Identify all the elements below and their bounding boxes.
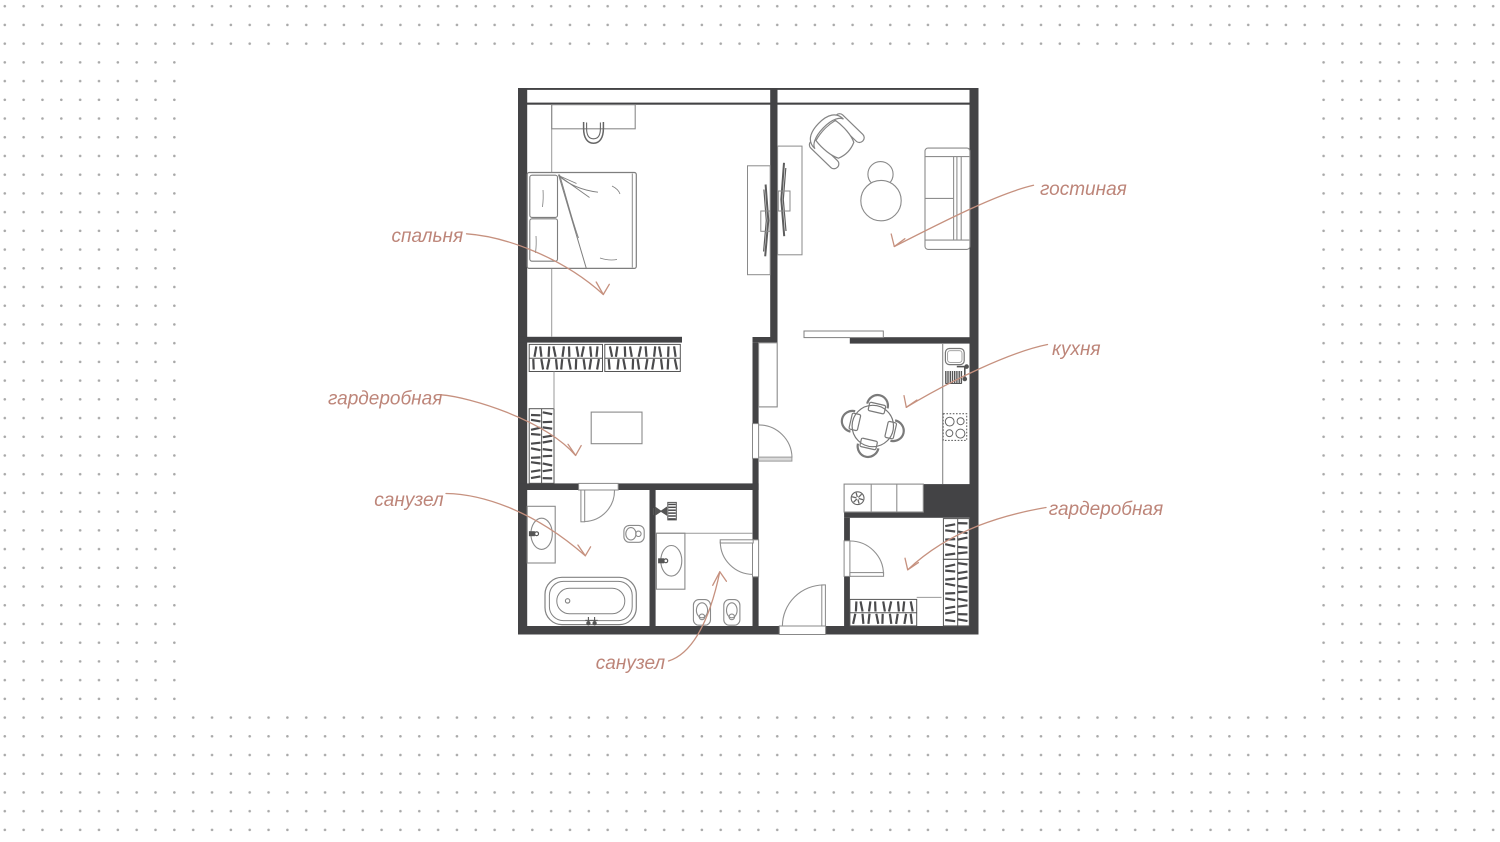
svg-text:гардеробная: гардеробная	[1049, 499, 1163, 520]
svg-text:гостиная: гостиная	[1040, 179, 1127, 200]
svg-text:спальня: спальня	[392, 226, 464, 247]
svg-text:гардеробная: гардеробная	[328, 389, 442, 410]
svg-text:кухня: кухня	[1052, 339, 1101, 360]
svg-text:санузел: санузел	[374, 490, 444, 511]
svg-text:санузел: санузел	[596, 653, 666, 674]
